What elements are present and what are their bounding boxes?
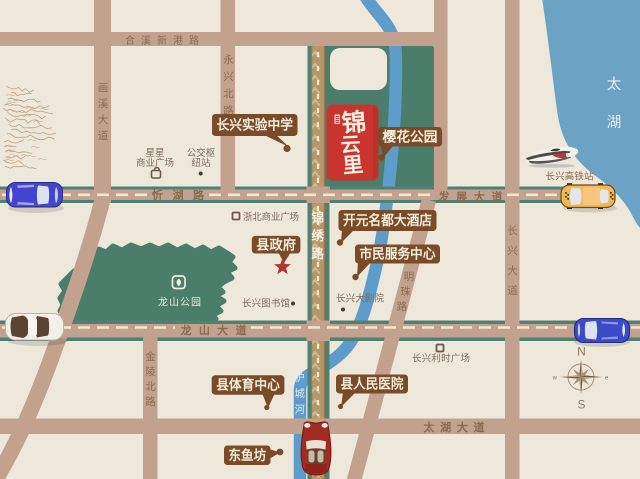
svg-text:县人民医院: 县人民医院 [341,376,404,392]
svg-text:北: 北 [145,381,156,393]
svg-text:湖: 湖 [607,114,622,131]
svg-text:金: 金 [145,350,156,363]
svg-text:长: 长 [507,225,518,237]
svg-text:龙山公园: 龙山公园 [158,296,202,309]
svg-text:明: 明 [404,271,415,283]
svg-text:县政府: 县政府 [256,236,296,252]
svg-text:开元名都大酒店: 开元名都大酒店 [343,212,432,228]
svg-text:里: 里 [342,153,364,178]
svg-text:S: S [577,398,585,412]
svg-text:永: 永 [223,53,234,66]
svg-text:北: 北 [223,88,234,100]
svg-text:太 湖 大 道: 太 湖 大 道 [423,420,485,434]
svg-text:河: 河 [295,404,305,416]
svg-text:N: N [577,345,586,359]
svg-text:太: 太 [607,76,622,93]
svg-text:w: w [552,376,558,382]
svg-text:县体育中心: 县体育中心 [216,377,280,393]
svg-text:兴: 兴 [507,245,518,257]
svg-text:长兴图书馆: 长兴图书馆 [242,298,290,310]
svg-text:路: 路 [312,246,325,261]
svg-text:市民服务中心: 市民服务中心 [360,246,436,262]
svg-text:溪: 溪 [98,98,109,110]
svg-text:樱花公园: 樱花公园 [383,129,438,145]
svg-text:珠: 珠 [400,285,411,298]
svg-text:陵: 陵 [145,366,156,378]
svg-text:道: 道 [98,129,109,142]
svg-text:护: 护 [295,371,305,384]
svg-text:大: 大 [98,113,109,126]
svg-text:锦: 锦 [312,210,325,225]
svg-text:浙北商业广场: 浙北商业广场 [243,211,299,223]
svg-text:绣: 绣 [311,228,325,243]
svg-text:长兴大剧院: 长兴大剧院 [336,293,384,305]
svg-text:龙 山 大 道: 龙 山 大 道 [180,323,247,337]
svg-text:长兴实验中学: 长兴实验中学 [217,117,294,133]
svg-text:发 展 大 道: 发 展 大 道 [438,190,503,204]
svg-text:画: 画 [98,82,109,94]
svg-text:城: 城 [295,388,305,400]
svg-text:兴: 兴 [223,71,234,83]
svg-text:忻 湖 路: 忻 湖 路 [152,188,205,202]
svg-text:长兴利时广场: 长兴利时广场 [412,353,470,365]
svg-text:东鱼坊: 东鱼坊 [229,447,267,463]
svg-text:道: 道 [507,284,518,297]
svg-text:大: 大 [507,264,518,277]
svg-text:路: 路 [397,300,408,313]
svg-text:商业广场: 商业广场 [136,157,174,169]
svg-text:纽站: 纽站 [191,157,211,169]
svg-text:路: 路 [145,395,156,408]
svg-text:长兴高铁站: 长兴高铁站 [546,171,594,183]
